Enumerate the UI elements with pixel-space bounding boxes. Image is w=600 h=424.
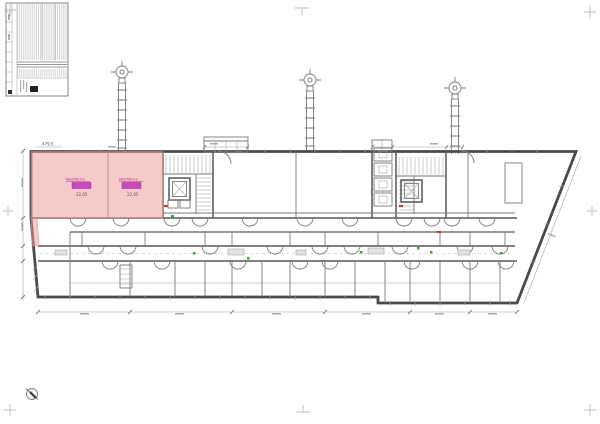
building-plan: 479,5 Mietfläche 22,05 Mietfläche 22,05 <box>21 137 581 315</box>
crop-mark <box>584 404 596 416</box>
room-label: Mietfläche <box>119 178 138 182</box>
crop-mark <box>587 206 597 216</box>
crop-mark <box>296 405 310 412</box>
room-tag <box>72 183 91 189</box>
stamp-mark <box>8 90 12 94</box>
title-text-greek <box>20 80 21 92</box>
crop-mark <box>4 404 16 416</box>
red-marker <box>164 205 168 207</box>
crop-mark <box>295 8 309 15</box>
chimney-stack-2 <box>299 69 321 151</box>
crop-mark <box>584 6 596 18</box>
title-block <box>6 3 68 96</box>
crop-mark <box>3 206 13 216</box>
stair-core-left <box>163 155 213 214</box>
room-label: Mietfläche <box>66 178 85 182</box>
chimney-stack-3 <box>444 77 466 154</box>
room-area: 22,05 <box>127 192 139 197</box>
shower-box <box>505 163 522 203</box>
chimney-stack-1 <box>111 61 133 152</box>
firm-logo <box>30 86 38 92</box>
room-area: 22,05 <box>76 192 88 197</box>
roof-shaft-b <box>372 140 392 151</box>
drawing-sheet: 479,5 Mietfläche 22,05 Mietfläche 22,05 <box>0 0 600 424</box>
room-tag <box>122 183 141 189</box>
table-divider <box>17 62 67 67</box>
dimension-label: 479,5 <box>42 142 54 147</box>
floor-plan-canvas: 479,5 Mietfläche 22,05 Mietfläche 22,05 <box>0 0 600 424</box>
wc-fixtures <box>374 148 392 206</box>
green-marker <box>171 215 174 218</box>
stair-core-right <box>396 157 446 214</box>
north-arrow-icon <box>26 389 38 400</box>
